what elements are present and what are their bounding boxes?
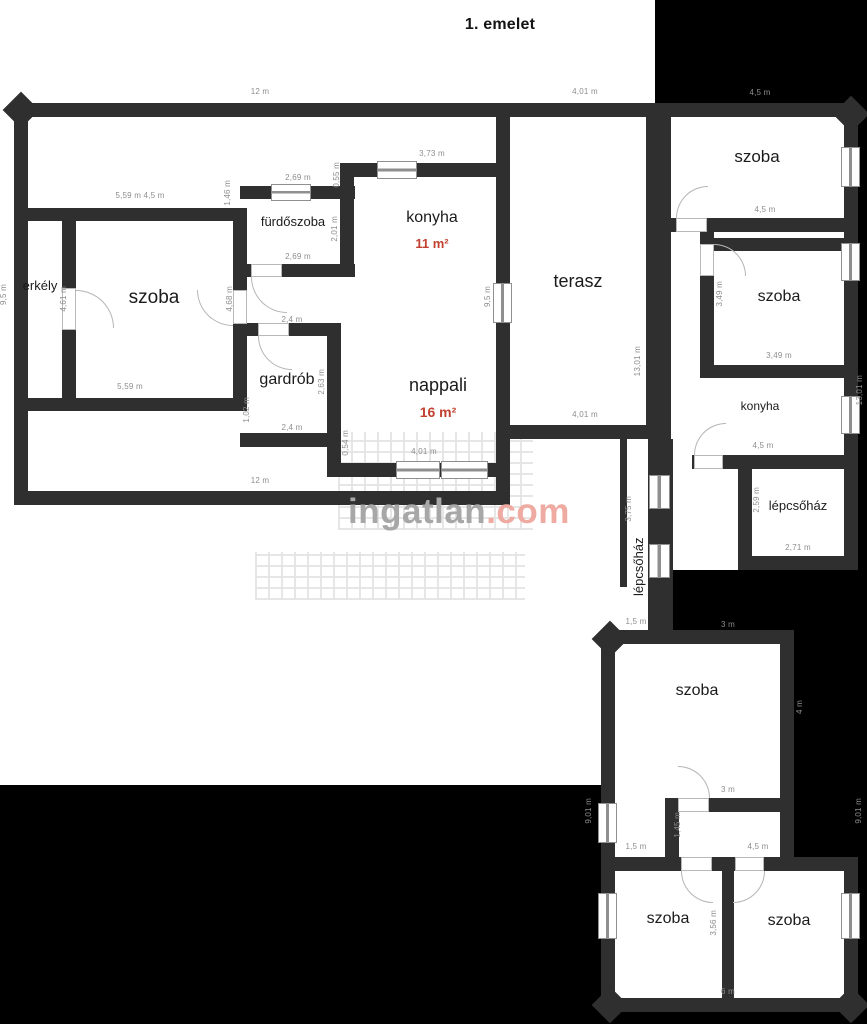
- dim-v-4: 4 m: [796, 700, 804, 714]
- dim-mid-top-3: 3 m: [678, 621, 778, 630]
- door-jamb: [681, 857, 712, 871]
- room-label-szoba-mid: szoba: [647, 682, 747, 700]
- wall: [601, 630, 794, 644]
- dim-v-055: 0,55 m: [333, 162, 341, 188]
- dim-v-349: 3,49 m: [716, 281, 724, 307]
- dim-v-461: 4,61 m: [60, 286, 68, 312]
- wall: [14, 398, 247, 411]
- dim-v-145: 1,45 m: [674, 812, 682, 838]
- dim-v-201: 2,01 m: [331, 216, 339, 242]
- dim-szoba-r1-bottom: 4,5 m: [715, 206, 815, 215]
- dim-szoba-top: 5,59 m 4,5 m: [75, 192, 205, 201]
- window-icon: [841, 893, 860, 939]
- mask-bottom-edge: [601, 1010, 867, 1024]
- dim-v-146: 1,46 m: [224, 180, 232, 206]
- room-label-nappali: nappali: [388, 376, 488, 396]
- dim-v-901-left: 9,01 m: [585, 798, 593, 824]
- wall: [14, 103, 510, 117]
- area-label-nappali: 16 m²: [388, 405, 488, 419]
- dim-terasz-bottom: 4,01 m: [535, 411, 635, 420]
- dim-lepcso-r-bottom: 2,71 m: [748, 544, 848, 553]
- window-icon: [396, 461, 440, 479]
- area-label-konyha: 11 m²: [382, 237, 482, 250]
- dim-nappali-bottom: 4,01 m: [374, 448, 474, 457]
- dim-v-95-left: 9,5 m: [0, 284, 8, 305]
- watermark-pattern: [255, 552, 525, 600]
- room-label-szoba-b2: szoba: [739, 912, 839, 930]
- dim-mid-15: 1,5 m: [600, 843, 672, 852]
- dim-v-054: 0,54 m: [342, 430, 350, 456]
- door-jamb: [735, 857, 764, 871]
- wall: [700, 365, 858, 378]
- room-label-szoba-r1: szoba: [707, 148, 807, 167]
- door-jamb: [700, 244, 714, 276]
- wall: [601, 857, 858, 871]
- door-arc: [251, 277, 287, 313]
- dim-mid-45: 4,5 m: [708, 843, 808, 852]
- dim-v-95-right: 9,5 m: [484, 286, 492, 307]
- room-label-konyha: konyha: [382, 209, 482, 227]
- dim-corridor-15: 1,5 m: [600, 618, 672, 627]
- dim-v-1301-right: 13,01 m: [856, 375, 864, 405]
- door-jamb: [258, 323, 289, 336]
- watermark-tld: .com: [486, 492, 570, 531]
- dim-top-12: 12 m: [210, 88, 310, 97]
- dim-mid-bottom-3: 3 m: [678, 786, 778, 795]
- dim-v-901-right: 9,01 m: [855, 798, 863, 824]
- wall: [780, 630, 794, 857]
- wall: [657, 103, 671, 464]
- wall: [648, 439, 673, 634]
- room-label-lepcsohaz-n: lépcsőház: [632, 476, 645, 596]
- dim-v-259: 2,59 m: [753, 487, 761, 513]
- mask-right-edge: [858, 103, 867, 1024]
- wall: [62, 221, 76, 288]
- wall: [496, 425, 660, 439]
- wall: [240, 433, 327, 447]
- dim-top-401: 4,01 m: [535, 88, 635, 97]
- door-jamb: [678, 798, 709, 812]
- dim-v-468: 4,68 m: [226, 286, 234, 312]
- wall-corner: [3, 92, 40, 129]
- dim-v-102: 1,02 m: [243, 397, 251, 423]
- dim-v-1301-terasz: 13,01 m: [634, 346, 642, 376]
- wall: [327, 323, 341, 477]
- dim-bottom-12: 12 m: [210, 477, 310, 486]
- watermark-name: ingatlan: [348, 492, 486, 531]
- room-label-terasz: terasz: [528, 272, 628, 292]
- dim-top-45: 4,5 m: [710, 89, 810, 98]
- door-jamb: [676, 218, 707, 232]
- wall: [62, 330, 76, 398]
- window-icon: [377, 161, 417, 179]
- wall: [601, 998, 858, 1012]
- window-icon: [441, 461, 488, 479]
- dim-bottom-6: 6 m: [678, 988, 778, 997]
- dim-szoba-r2-bottom: 3,49 m: [729, 352, 829, 361]
- room-label-szoba-r2: szoba: [729, 288, 829, 306]
- dim-szoba-bottom: 5,59 m: [80, 383, 180, 392]
- dim-v-375: 3,75 m: [625, 496, 633, 522]
- room-label-konyha-r: konyha: [715, 400, 805, 413]
- window-icon: [841, 243, 860, 281]
- watermark: ingatlan.com: [348, 492, 570, 532]
- wall: [738, 469, 752, 570]
- interior-mid-block: [615, 644, 780, 857]
- door-jamb: [694, 455, 723, 469]
- dim-v-356: 3,56 m: [710, 910, 718, 936]
- room-label-lepcsohaz-r: lépcsőház: [748, 499, 848, 513]
- room-label-szoba-main: szoba: [104, 288, 204, 309]
- dim-gardrob-top: 2,4 m: [242, 316, 342, 325]
- room-label-szoba-b1: szoba: [618, 910, 718, 928]
- page-title: 1. emelet: [400, 16, 600, 34]
- window-icon: [598, 803, 617, 843]
- dim-gardrob-bottom: 2,4 m: [242, 424, 342, 433]
- mask-mid-block-right: [794, 630, 858, 857]
- dim-konyha-r-bottom: 4,5 m: [713, 442, 813, 451]
- wall: [510, 103, 660, 117]
- window-icon: [493, 283, 512, 323]
- window-icon: [649, 475, 670, 509]
- door-jamb: [251, 264, 282, 277]
- door-arc: [258, 336, 292, 370]
- dim-konyha-top: 3,73 m: [382, 150, 482, 159]
- wall: [657, 103, 858, 117]
- window-icon: [598, 893, 617, 939]
- wall: [28, 208, 247, 221]
- wall: [14, 103, 28, 505]
- dim-v-263: 2,63 m: [318, 369, 326, 395]
- window-icon: [649, 544, 670, 578]
- dim-furdo-bottom: 2,69 m: [248, 253, 348, 262]
- wall: [738, 556, 858, 570]
- floorplan: 1. emelet: [0, 0, 867, 1024]
- window-icon: [841, 147, 860, 187]
- window-icon: [271, 184, 311, 201]
- mask-bottom-left: [0, 785, 601, 1024]
- room-label-furdoszoba: fürdőszoba: [243, 215, 343, 229]
